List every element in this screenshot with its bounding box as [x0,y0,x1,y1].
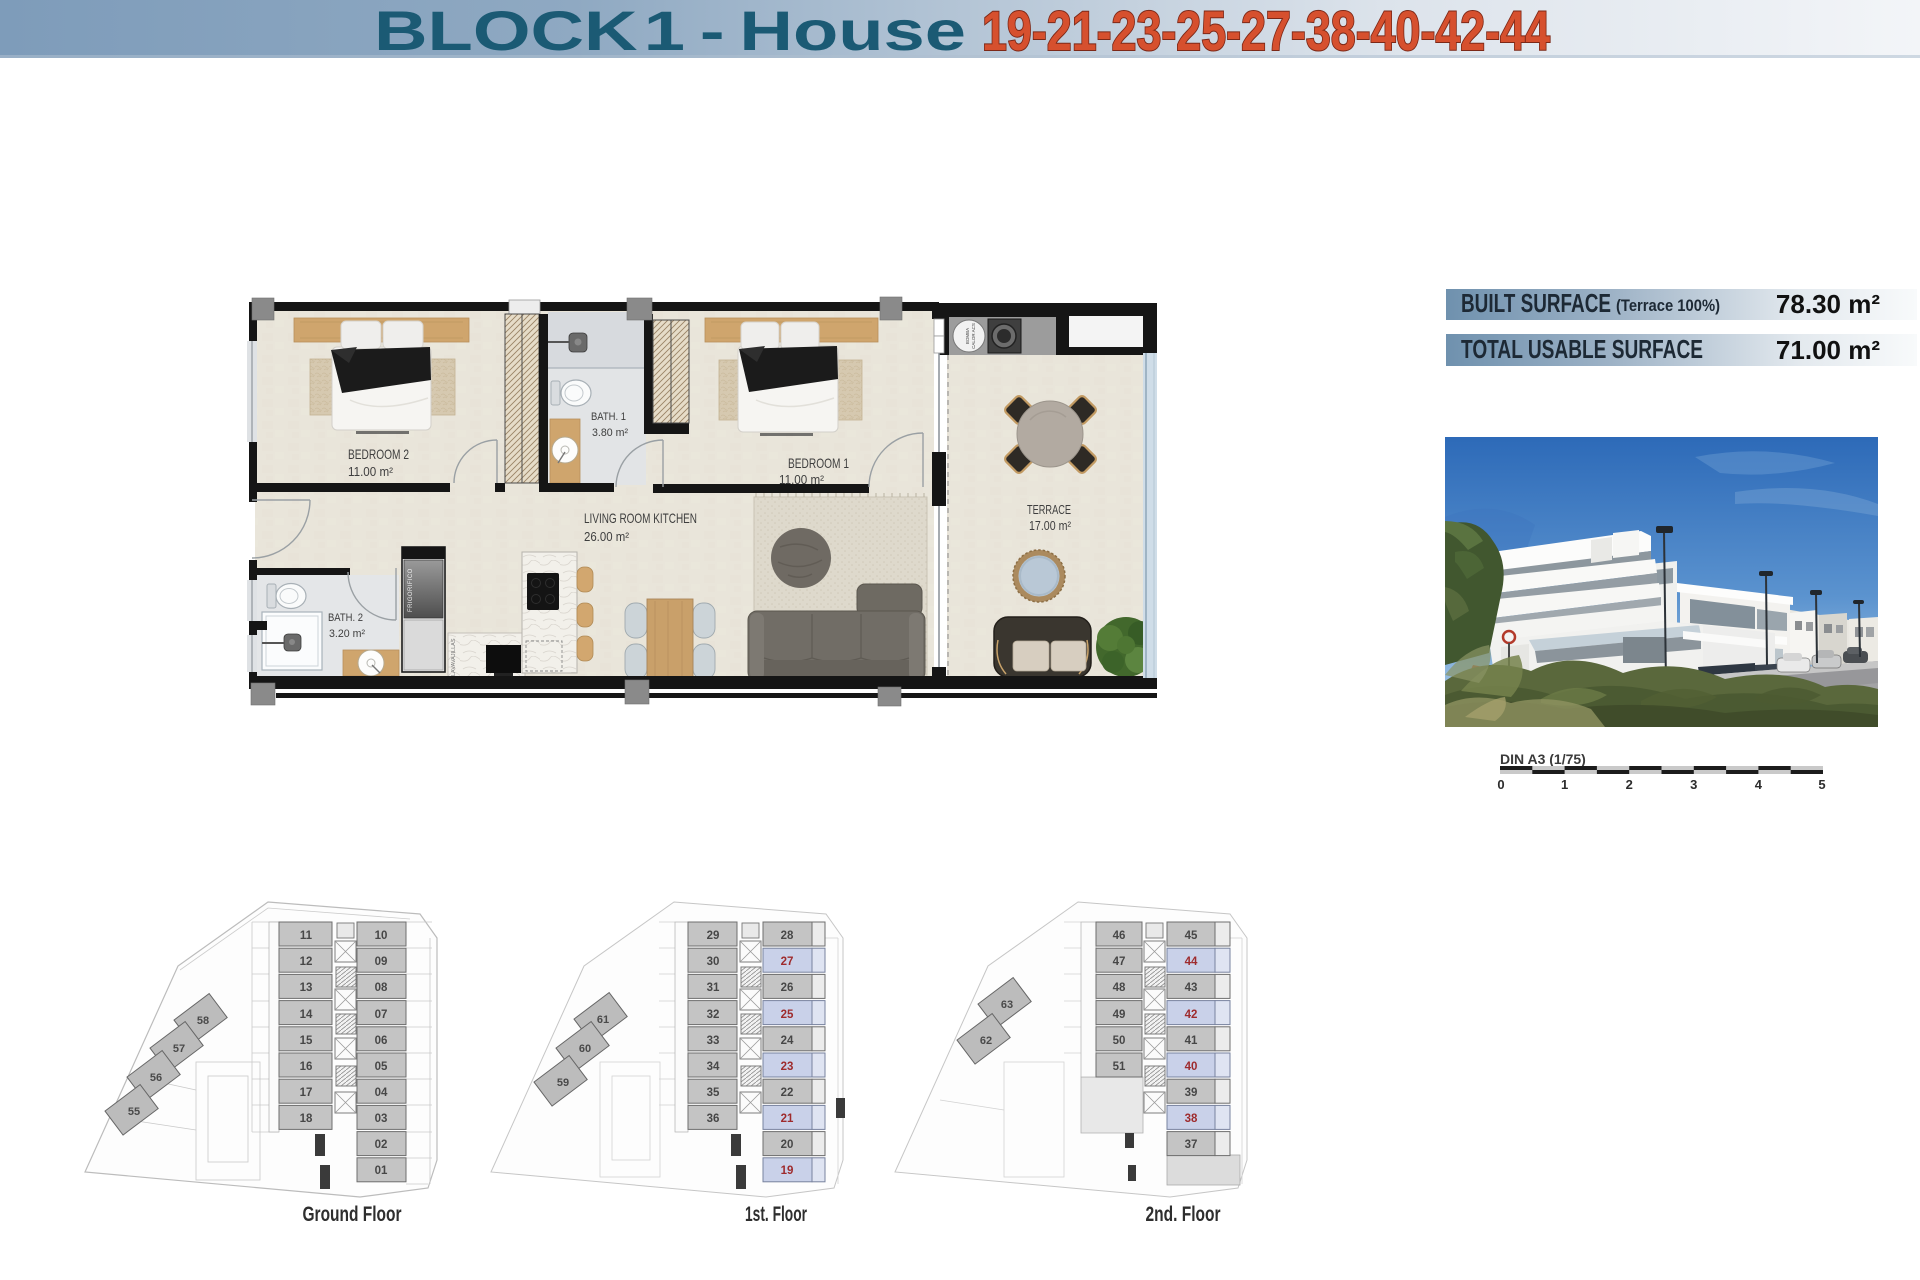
svg-text:59: 59 [557,1077,569,1089]
svg-text:BOMBA: BOMBA [965,328,970,344]
svg-text:(Terrace 100%): (Terrace 100%) [1616,296,1720,315]
svg-text:Ground Floor: Ground Floor [303,1203,402,1226]
svg-text:11.00 m²: 11.00 m² [779,472,825,487]
svg-text:39: 39 [1185,1087,1198,1099]
svg-text:24: 24 [781,1035,794,1047]
svg-text:48: 48 [1113,982,1126,994]
svg-text:25: 25 [781,1009,794,1021]
svg-text:1: 1 [1561,777,1568,792]
svg-text:49: 49 [1113,1009,1126,1021]
svg-text:1st. Floor: 1st. Floor [745,1203,807,1226]
svg-text:2nd. Floor: 2nd. Floor [1146,1203,1221,1226]
svg-text:60: 60 [579,1043,591,1055]
svg-text:57: 57 [173,1043,185,1055]
svg-text:LIVING ROOM KITCHEN: LIVING ROOM KITCHEN [584,510,697,526]
svg-text:BATH. 1: BATH. 1 [591,411,626,423]
svg-text:46: 46 [1113,930,1126,942]
svg-text:17.00 m²: 17.00 m² [1029,519,1071,533]
svg-text:LAVAVAJILLAS: LAVAVAJILLAS [451,638,457,676]
svg-text:09: 09 [375,956,388,968]
svg-text:4: 4 [1755,777,1763,792]
svg-text:27: 27 [781,956,794,968]
svg-text:37: 37 [1185,1139,1198,1151]
svg-text:22: 22 [781,1087,794,1099]
svg-text:51: 51 [1113,1061,1126,1073]
svg-text:33: 33 [707,1035,720,1047]
svg-text:29: 29 [707,930,720,942]
svg-text:19-21-23-25-27-38-40-42-44: 19-21-23-25-27-38-40-42-44 [982,0,1550,62]
svg-text:35: 35 [707,1087,720,1099]
svg-text:11: 11 [300,930,313,942]
svg-text:3.20 m²: 3.20 m² [329,628,365,640]
svg-text:58: 58 [197,1015,209,1027]
svg-text:CALOR ACS: CALOR ACS [971,323,976,349]
svg-text:16: 16 [300,1061,313,1073]
svg-text:08: 08 [375,982,388,994]
svg-text:40: 40 [1185,1061,1198,1073]
svg-text:36: 36 [707,1113,720,1125]
svg-text:12: 12 [300,956,313,968]
svg-text:38: 38 [1185,1113,1198,1125]
svg-text:BLOCK 1 - House: BLOCK 1 - House [374,0,966,62]
svg-text:41: 41 [1185,1035,1198,1047]
svg-text:11.00 m²: 11.00 m² [348,464,394,479]
svg-text:10: 10 [375,930,388,942]
svg-text:26: 26 [781,982,794,994]
svg-text:61: 61 [597,1014,609,1026]
svg-text:55: 55 [128,1106,140,1118]
svg-text:BEDROOM 1: BEDROOM 1 [788,455,849,471]
svg-text:50: 50 [1113,1035,1126,1047]
svg-text:5: 5 [1818,777,1825,792]
svg-text:TOTAL USABLE SURFACE: TOTAL USABLE SURFACE [1461,334,1703,364]
svg-text:18: 18 [300,1113,313,1125]
svg-text:BATH. 2: BATH. 2 [328,612,363,624]
svg-text:63: 63 [1001,999,1013,1011]
svg-text:3.80 m²: 3.80 m² [592,427,628,439]
svg-text:47: 47 [1113,956,1126,968]
svg-text:45: 45 [1185,930,1198,942]
svg-text:BUILT SURFACE: BUILT SURFACE [1461,288,1611,318]
svg-text:06: 06 [375,1035,388,1047]
svg-text:03: 03 [375,1113,388,1125]
svg-text:BEDROOM 2: BEDROOM 2 [348,446,409,462]
svg-text:2: 2 [1626,777,1633,792]
svg-text:31: 31 [707,982,720,994]
svg-text:05: 05 [375,1061,388,1073]
svg-text:DIN A3 (1/75): DIN A3 (1/75) [1500,751,1586,767]
svg-text:07: 07 [375,1009,388,1021]
svg-text:01: 01 [375,1165,388,1177]
svg-text:19: 19 [781,1165,794,1177]
svg-text:34: 34 [707,1061,720,1073]
svg-text:23: 23 [781,1061,794,1073]
svg-text:04: 04 [375,1087,388,1099]
svg-text:20: 20 [781,1139,794,1151]
svg-text:42: 42 [1185,1009,1198,1021]
svg-text:02: 02 [375,1139,388,1151]
svg-text:43: 43 [1185,982,1198,994]
svg-text:71.00 m²: 71.00 m² [1776,335,1880,365]
svg-text:56: 56 [150,1072,162,1084]
svg-text:TERRACE: TERRACE [1027,502,1071,517]
svg-text:62: 62 [980,1035,992,1047]
svg-text:28: 28 [781,930,794,942]
svg-text:14: 14 [300,1009,313,1021]
svg-text:30: 30 [707,956,720,968]
svg-text:0: 0 [1497,777,1504,792]
svg-text:13: 13 [300,982,313,994]
svg-text:21: 21 [781,1113,794,1125]
svg-text:17: 17 [300,1087,313,1099]
svg-text:44: 44 [1185,956,1198,968]
svg-text:FRIGORIFICO: FRIGORIFICO [408,568,414,612]
svg-text:32: 32 [707,1009,720,1021]
svg-text:15: 15 [300,1035,313,1047]
svg-text:3: 3 [1690,777,1697,792]
svg-text:26.00 m²: 26.00 m² [584,529,630,544]
svg-text:78.30 m²: 78.30 m² [1776,289,1880,319]
